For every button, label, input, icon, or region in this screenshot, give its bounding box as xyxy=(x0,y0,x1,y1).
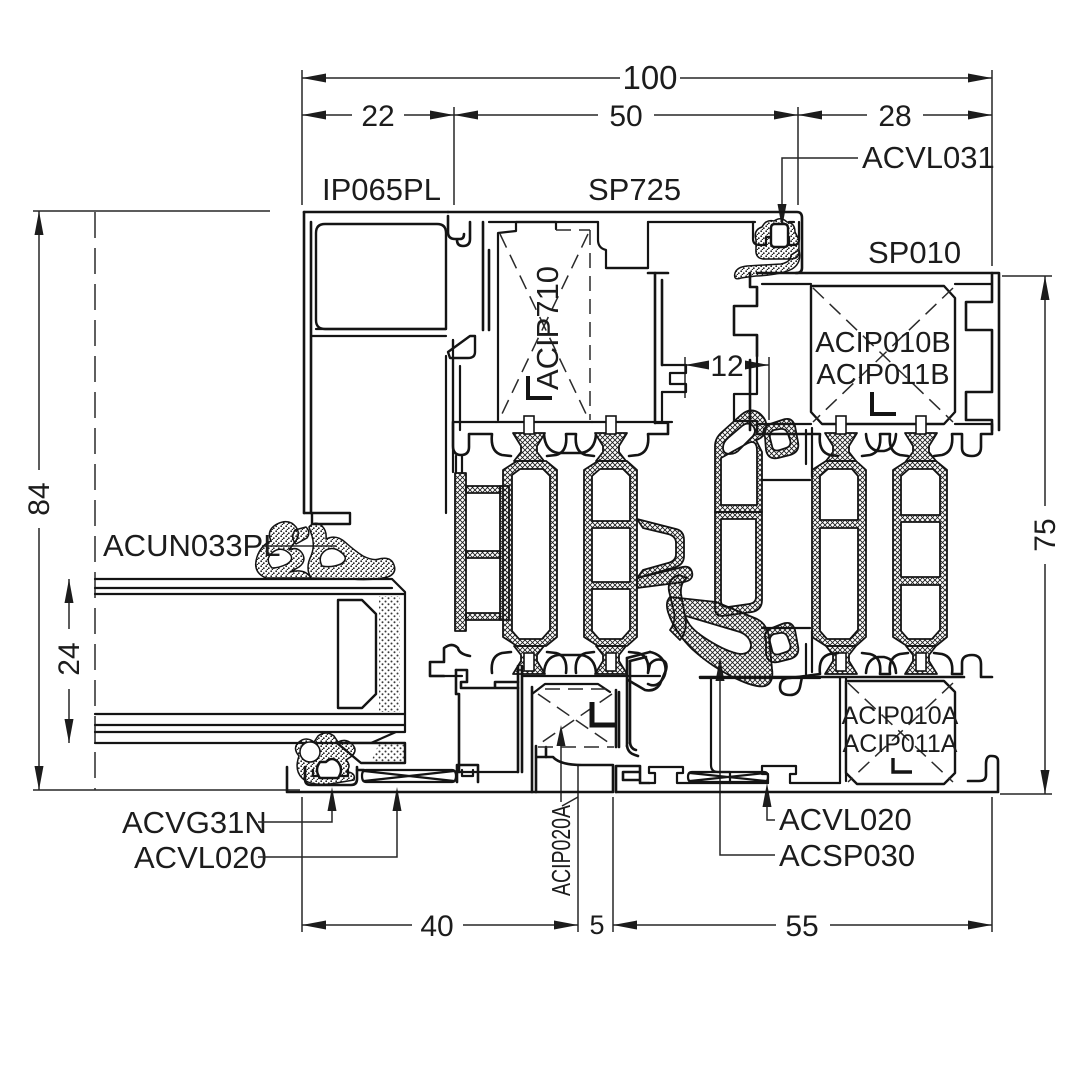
svg-text:12: 12 xyxy=(710,350,743,383)
svg-text:50: 50 xyxy=(609,100,642,133)
svg-text:ACVL031: ACVL031 xyxy=(862,140,995,175)
svg-text:ACUN033PL: ACUN033PL xyxy=(103,528,280,563)
svg-text:ACIP710: ACIP710 xyxy=(530,266,565,390)
svg-text:22: 22 xyxy=(361,100,394,133)
svg-text:5: 5 xyxy=(589,910,604,940)
svg-text:100: 100 xyxy=(622,59,677,96)
svg-text:ACVL020: ACVL020 xyxy=(779,802,912,837)
svg-text:ACIP010A: ACIP010A xyxy=(842,702,959,730)
svg-text:ACIP011A: ACIP011A xyxy=(843,730,958,758)
svg-text:55: 55 xyxy=(785,910,818,943)
svg-text:84: 84 xyxy=(23,482,56,515)
svg-text:SP725: SP725 xyxy=(588,172,681,207)
svg-text:ACIP010B: ACIP010B xyxy=(815,327,950,359)
svg-text:ACVL020: ACVL020 xyxy=(134,840,267,875)
svg-text:ACIP011B: ACIP011B xyxy=(816,359,949,391)
svg-text:40: 40 xyxy=(420,910,453,943)
svg-text:ACIP020A: ACIP020A xyxy=(546,805,576,896)
svg-text:28: 28 xyxy=(878,100,911,133)
svg-text:24: 24 xyxy=(53,642,86,675)
svg-text:75: 75 xyxy=(1029,518,1062,551)
svg-text:IP065PL: IP065PL xyxy=(322,172,441,207)
svg-text:SP010: SP010 xyxy=(868,235,961,270)
svg-text:ACVG31N: ACVG31N xyxy=(122,805,267,840)
svg-text:ACSP030: ACSP030 xyxy=(779,838,915,873)
